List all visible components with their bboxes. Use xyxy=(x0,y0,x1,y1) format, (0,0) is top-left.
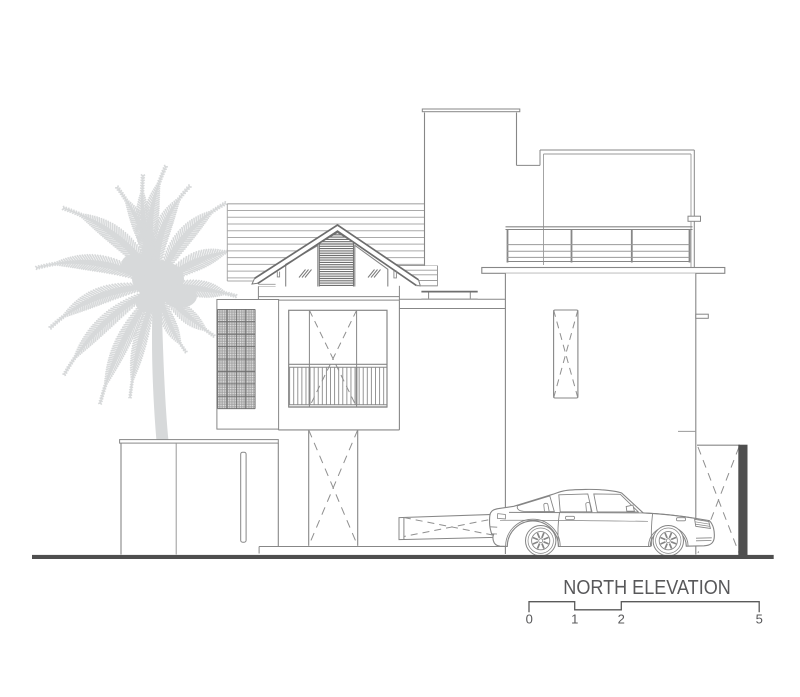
svg-text:1: 1 xyxy=(571,612,578,627)
svg-text:0: 0 xyxy=(526,612,533,627)
svg-text:2: 2 xyxy=(618,612,625,627)
svg-text:5: 5 xyxy=(756,612,763,627)
svg-text:NORTH ELEVATION: NORTH ELEVATION xyxy=(563,577,731,599)
